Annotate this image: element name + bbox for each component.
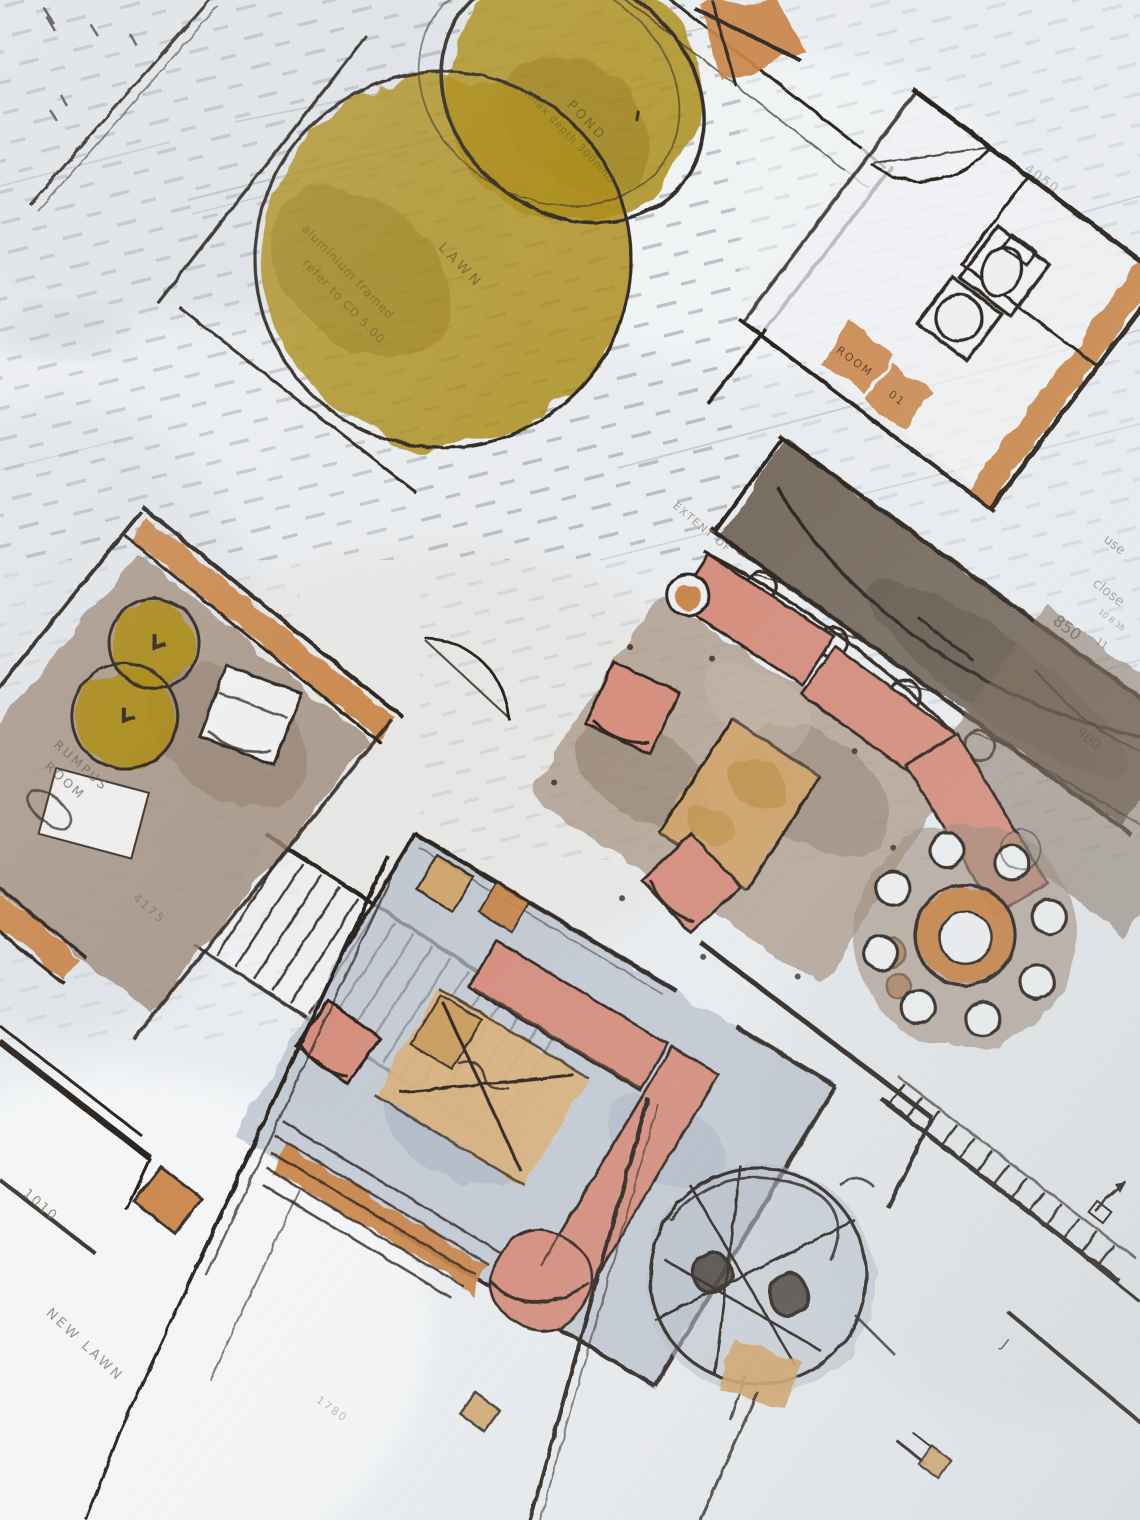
floorplan-sketch: POND (max depth 300mm) LAWN aluminium fr… (0, 0, 1140, 1520)
floorplan-photo: POND (max depth 300mm) LAWN aluminium fr… (0, 0, 1140, 1520)
lighting-overlay (0, 0, 1140, 1520)
